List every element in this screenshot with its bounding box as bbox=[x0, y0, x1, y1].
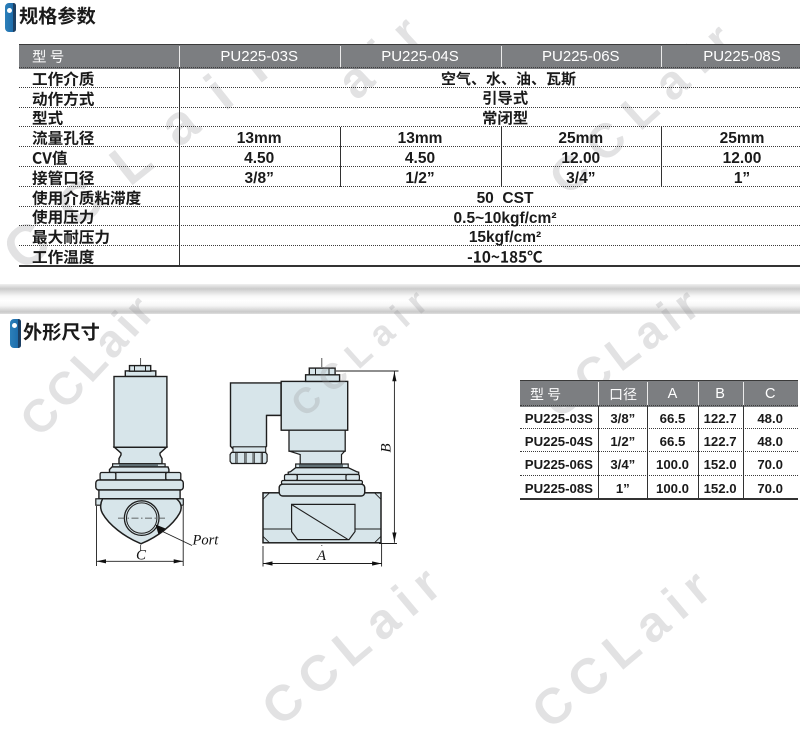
svg-text:Port: Port bbox=[192, 532, 220, 548]
svg-text:B: B bbox=[379, 443, 395, 452]
svg-text:C: C bbox=[136, 548, 147, 564]
svg-text:A: A bbox=[316, 548, 327, 564]
